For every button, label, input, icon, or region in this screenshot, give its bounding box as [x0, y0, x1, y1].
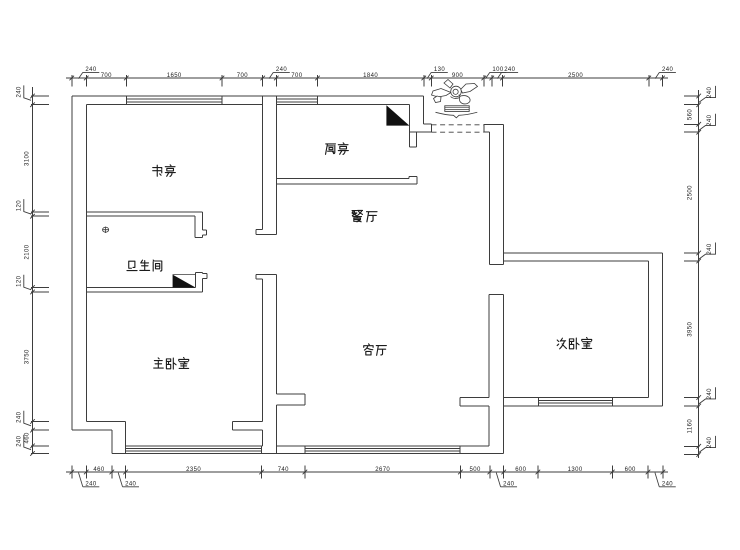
svg-text:1840: 1840 — [363, 73, 378, 79]
svg-text:900: 900 — [452, 73, 463, 79]
svg-text:1300: 1300 — [568, 467, 583, 473]
svg-text:240: 240 — [707, 86, 713, 97]
svg-text:740: 740 — [278, 467, 289, 473]
svg-text:460: 460 — [93, 467, 104, 473]
svg-text:120: 120 — [16, 200, 22, 211]
svg-text:240: 240 — [16, 86, 22, 97]
svg-text:240: 240 — [125, 481, 136, 487]
svg-text:240: 240 — [16, 435, 22, 446]
svg-text:700: 700 — [101, 73, 112, 79]
svg-text:240: 240 — [662, 67, 673, 73]
svg-text:1160: 1160 — [688, 419, 694, 434]
svg-text:2500: 2500 — [568, 73, 583, 79]
svg-text:130: 130 — [434, 67, 445, 73]
svg-text:700: 700 — [291, 73, 302, 79]
svg-text:240: 240 — [662, 481, 673, 487]
svg-text:240: 240 — [276, 67, 287, 73]
svg-text:2670: 2670 — [375, 467, 390, 473]
svg-text:560: 560 — [688, 109, 694, 120]
svg-text:2500: 2500 — [688, 185, 694, 200]
svg-text:500: 500 — [469, 467, 480, 473]
svg-text:600: 600 — [625, 467, 636, 473]
svg-text:240: 240 — [707, 388, 713, 399]
svg-text:120: 120 — [16, 275, 22, 286]
svg-text:3950: 3950 — [688, 322, 694, 337]
svg-text:240: 240 — [85, 481, 96, 487]
svg-text:1650: 1650 — [167, 73, 182, 79]
svg-text:240: 240 — [85, 67, 96, 73]
svg-text:460: 460 — [24, 432, 30, 443]
svg-text:2100: 2100 — [24, 244, 30, 259]
svg-text:240: 240 — [707, 437, 713, 448]
svg-text:240: 240 — [504, 67, 515, 73]
svg-text:3100: 3100 — [24, 151, 30, 166]
svg-text:240: 240 — [707, 114, 713, 125]
svg-text:600: 600 — [515, 467, 526, 473]
svg-text:2350: 2350 — [186, 467, 201, 473]
svg-text:240: 240 — [707, 243, 713, 254]
svg-text:3750: 3750 — [24, 349, 30, 364]
svg-text:240: 240 — [16, 411, 22, 422]
svg-text:240: 240 — [503, 481, 514, 487]
svg-text:700: 700 — [237, 73, 248, 79]
